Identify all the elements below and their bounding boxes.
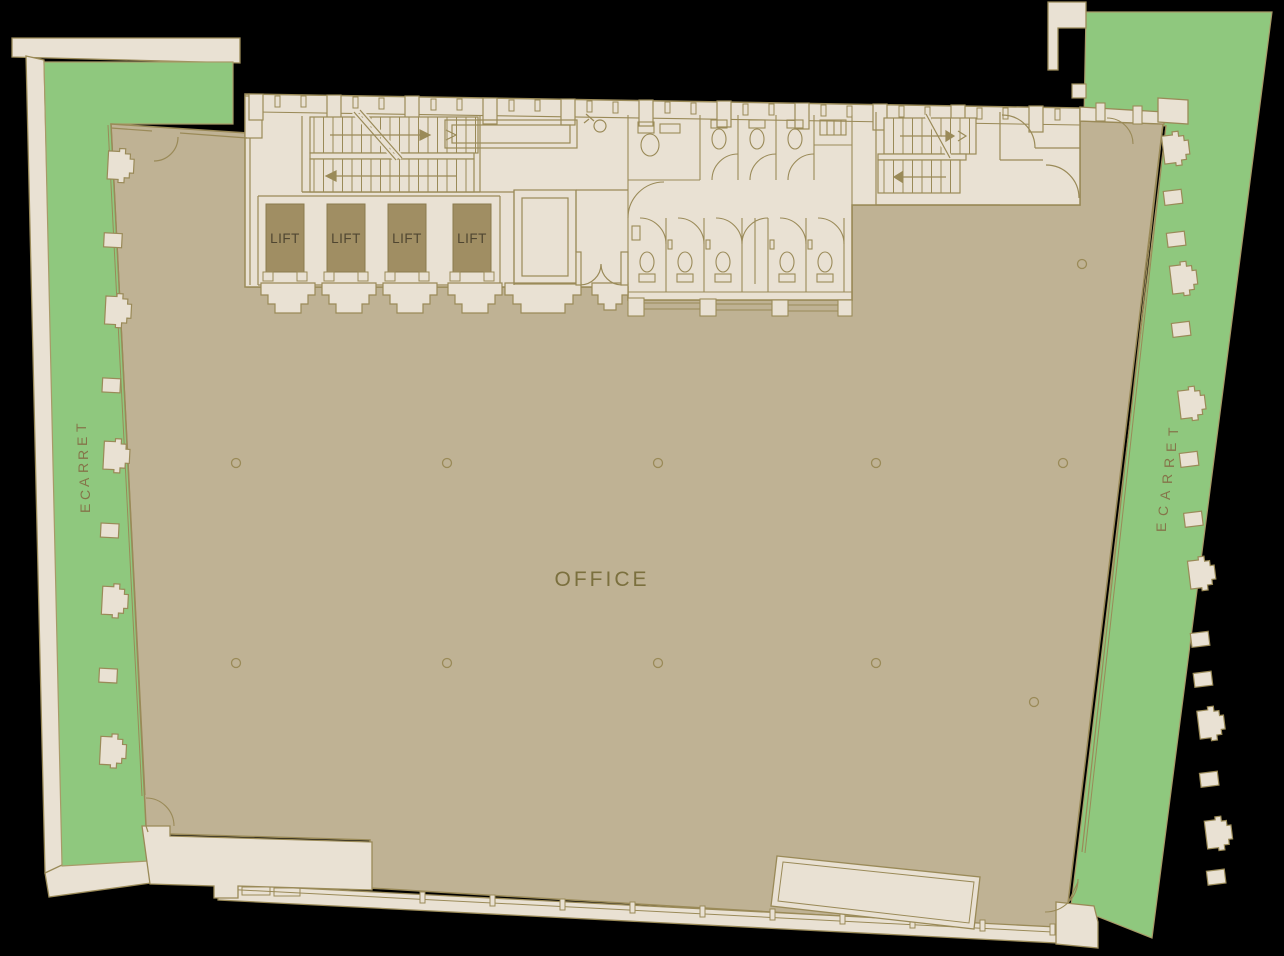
north-wall-jamb (1133, 106, 1142, 124)
north-stair-west (302, 110, 480, 192)
floor-plan-page: TERRACE TERRACE (0, 0, 1284, 956)
lift-1-label: LIFT (270, 231, 300, 246)
ne-corner-pier (1158, 98, 1188, 124)
north-wall-jamb (1096, 103, 1105, 121)
se-corner-block (1056, 902, 1098, 948)
lift-4-label: LIFT (457, 231, 487, 246)
lift-2-label: LIFT (331, 231, 361, 246)
terrace-right-wall-tab (1072, 84, 1086, 98)
floor-plan: TERRACE TERRACE (0, 0, 1284, 956)
office-label: OFFICE (555, 568, 650, 591)
lift-3-label: LIFT (392, 231, 422, 246)
